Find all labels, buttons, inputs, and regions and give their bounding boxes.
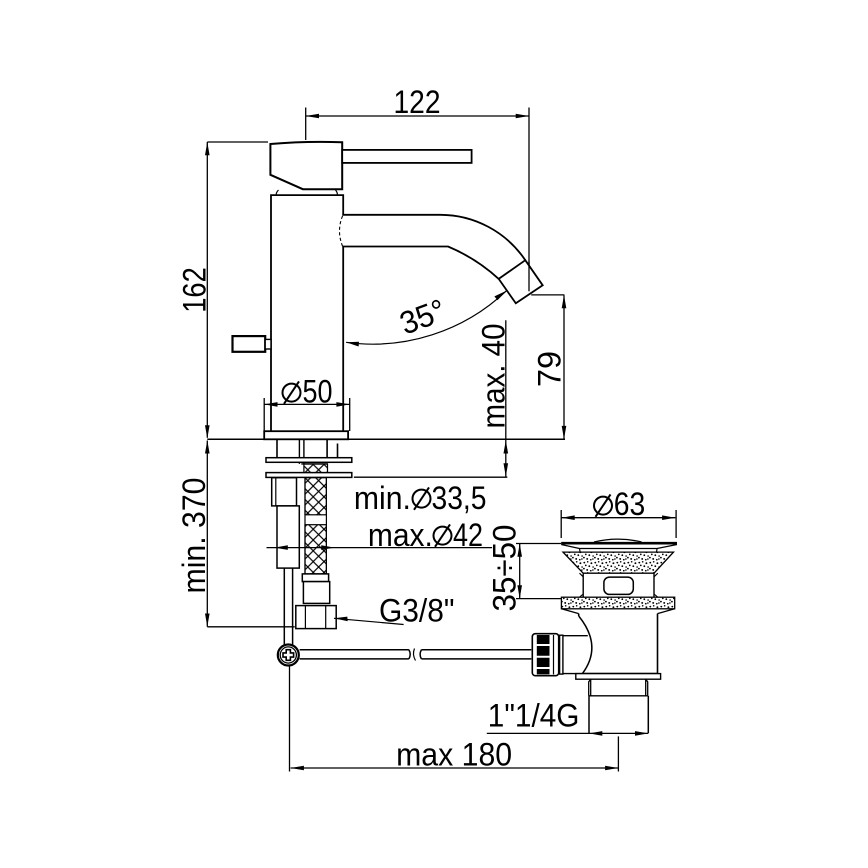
svg-text:42: 42	[453, 517, 483, 553]
svg-text:122: 122	[394, 84, 441, 120]
svg-text:max.: max.	[368, 517, 433, 553]
svg-text:max 180: max 180	[396, 737, 512, 773]
svg-text:G3/8": G3/8"	[379, 593, 455, 629]
svg-text:1"1/4G: 1"1/4G	[488, 698, 580, 734]
svg-text:min.: min.	[354, 480, 411, 516]
svg-text:33,5: 33,5	[432, 480, 487, 516]
svg-text:79: 79	[532, 351, 568, 387]
svg-text:min. 370: min. 370	[176, 478, 212, 594]
svg-text:63: 63	[614, 486, 646, 522]
